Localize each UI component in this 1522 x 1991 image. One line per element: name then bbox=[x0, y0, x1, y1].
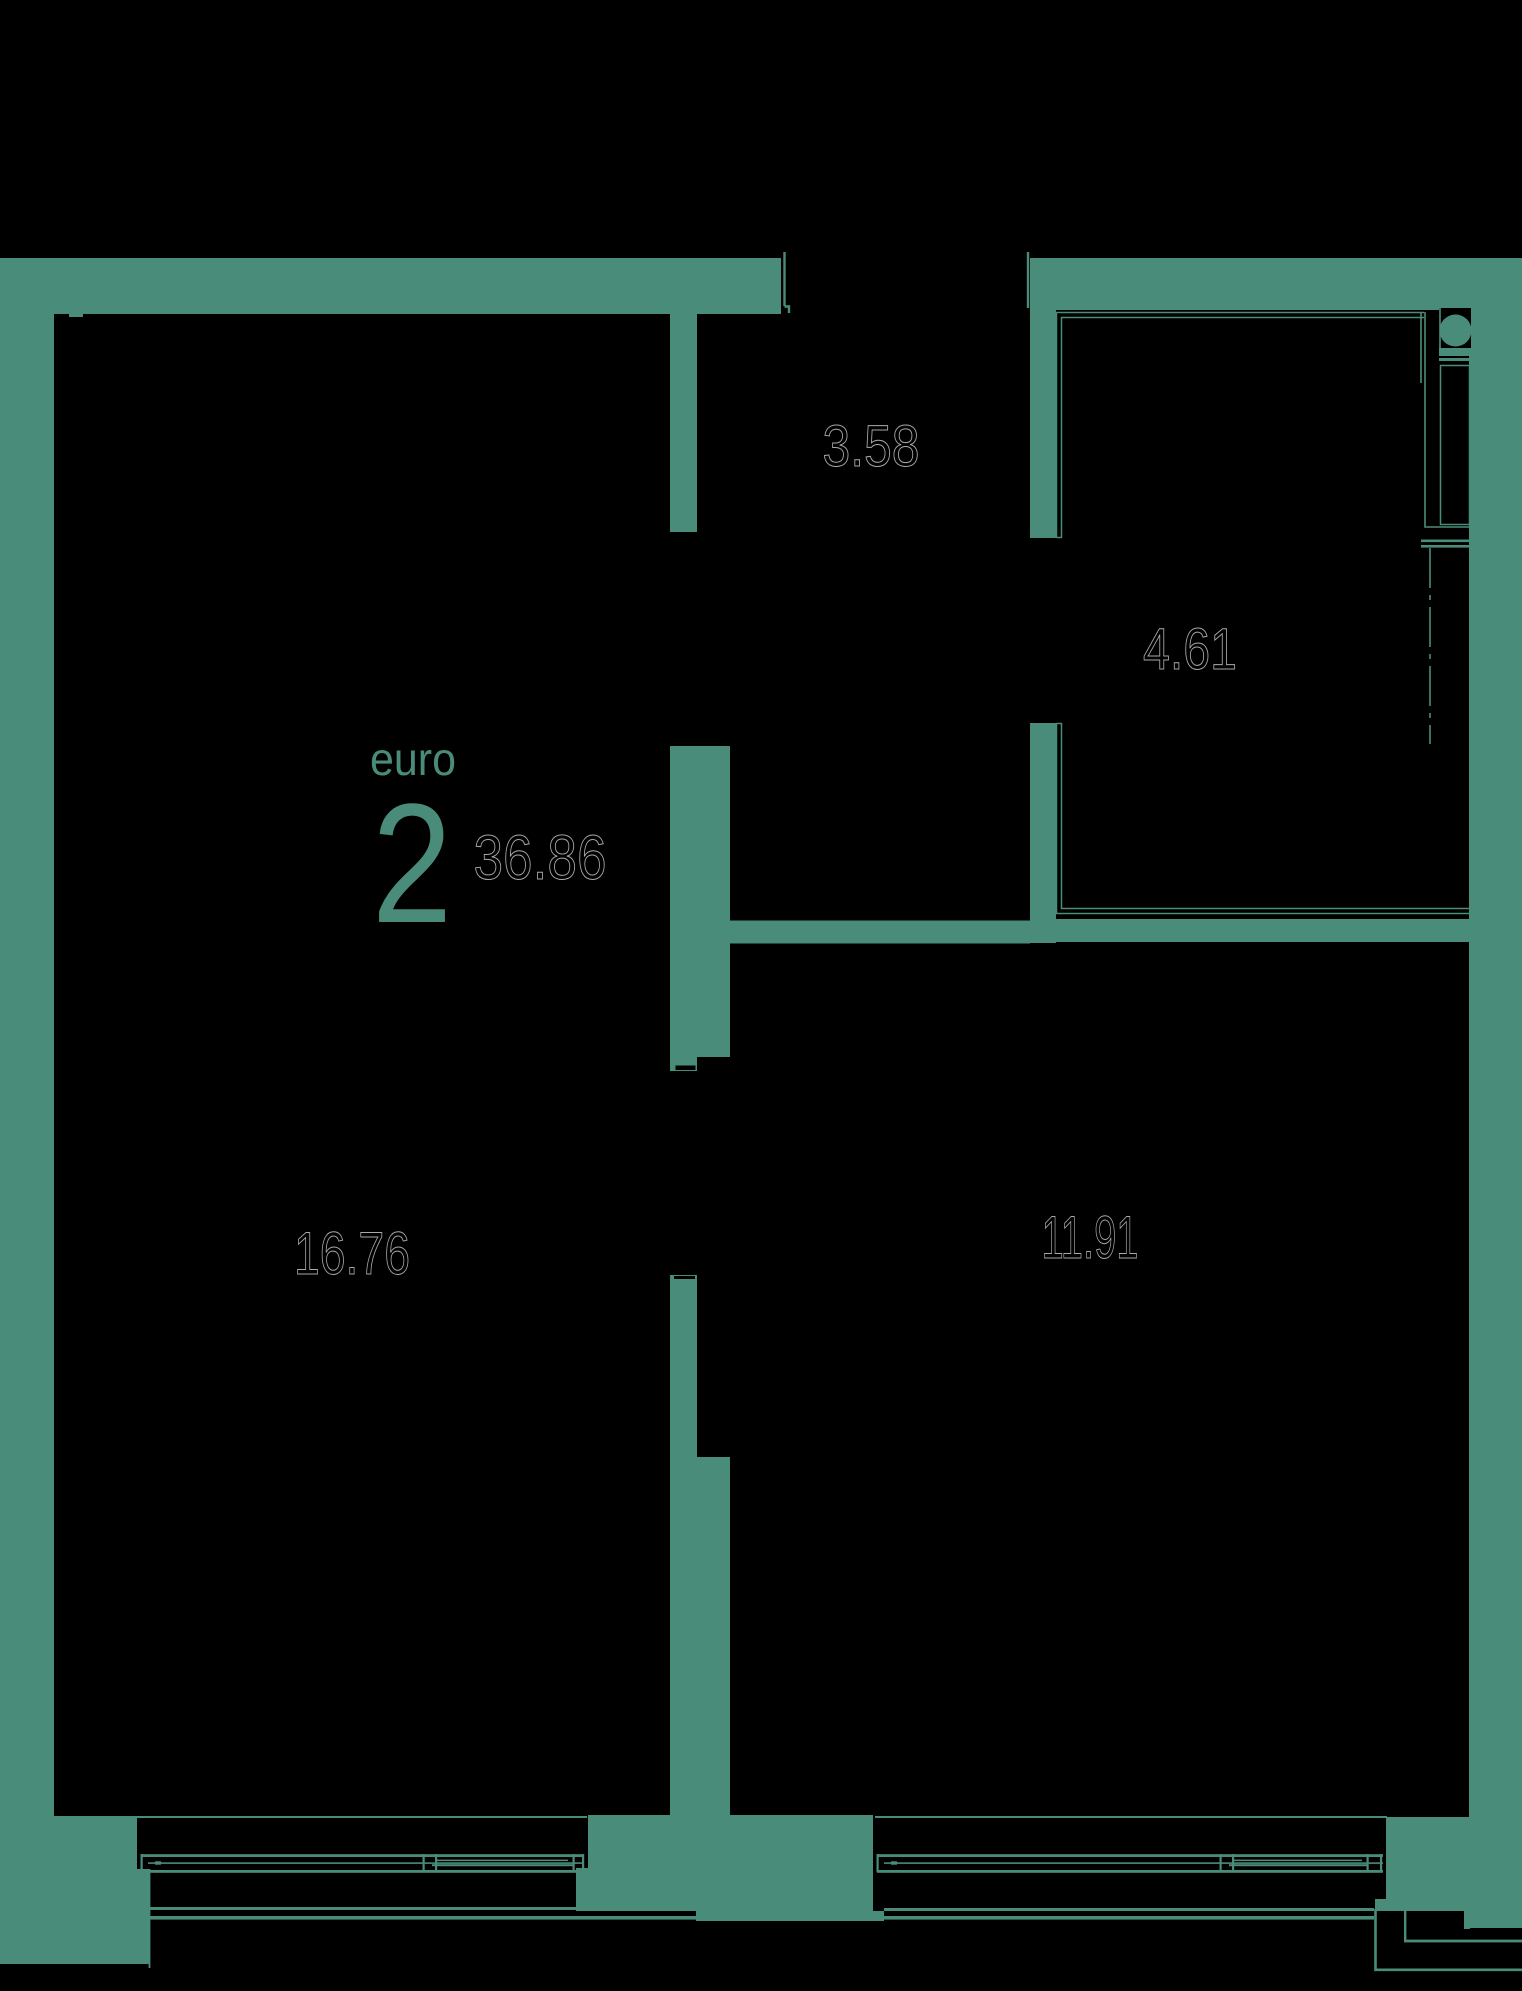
svg-text:36.86: 36.86 bbox=[474, 823, 607, 893]
svg-text:16.76: 16.76 bbox=[294, 1220, 410, 1287]
svg-text:4.61: 4.61 bbox=[1143, 617, 1237, 682]
svg-text:11.91: 11.91 bbox=[1042, 1204, 1139, 1271]
svg-text:2: 2 bbox=[372, 769, 452, 959]
svg-text:3.58: 3.58 bbox=[823, 414, 920, 479]
